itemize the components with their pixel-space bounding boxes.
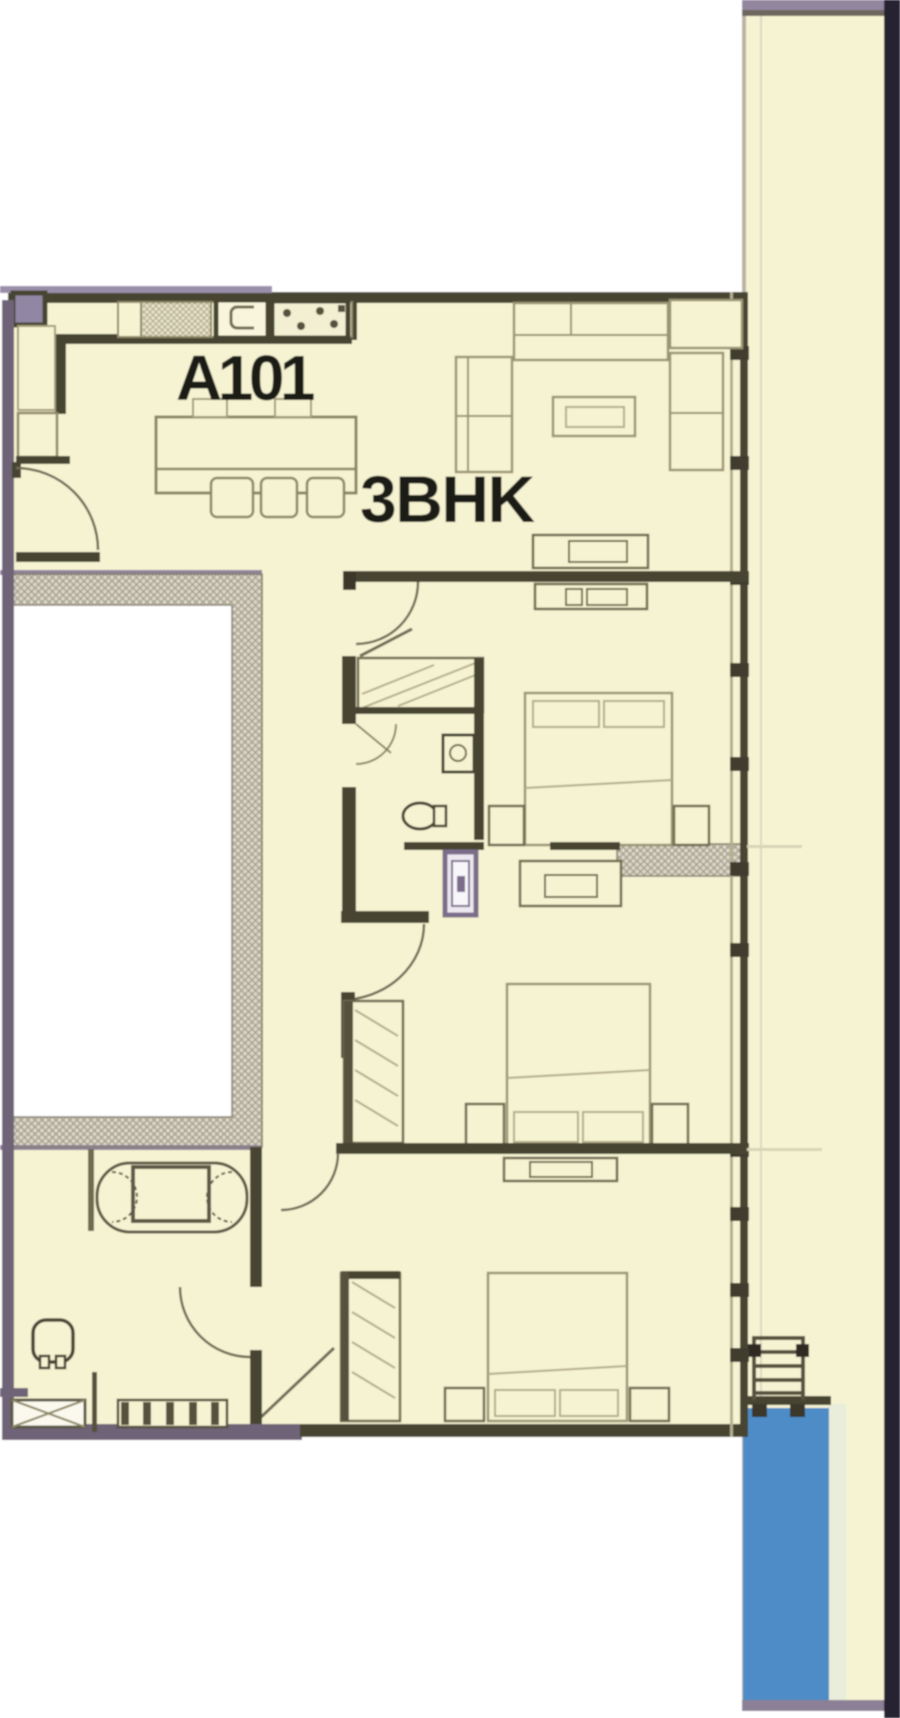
svg-text:3BHK: 3BHK xyxy=(360,462,536,536)
svg-text:A101: A101 xyxy=(176,342,314,414)
